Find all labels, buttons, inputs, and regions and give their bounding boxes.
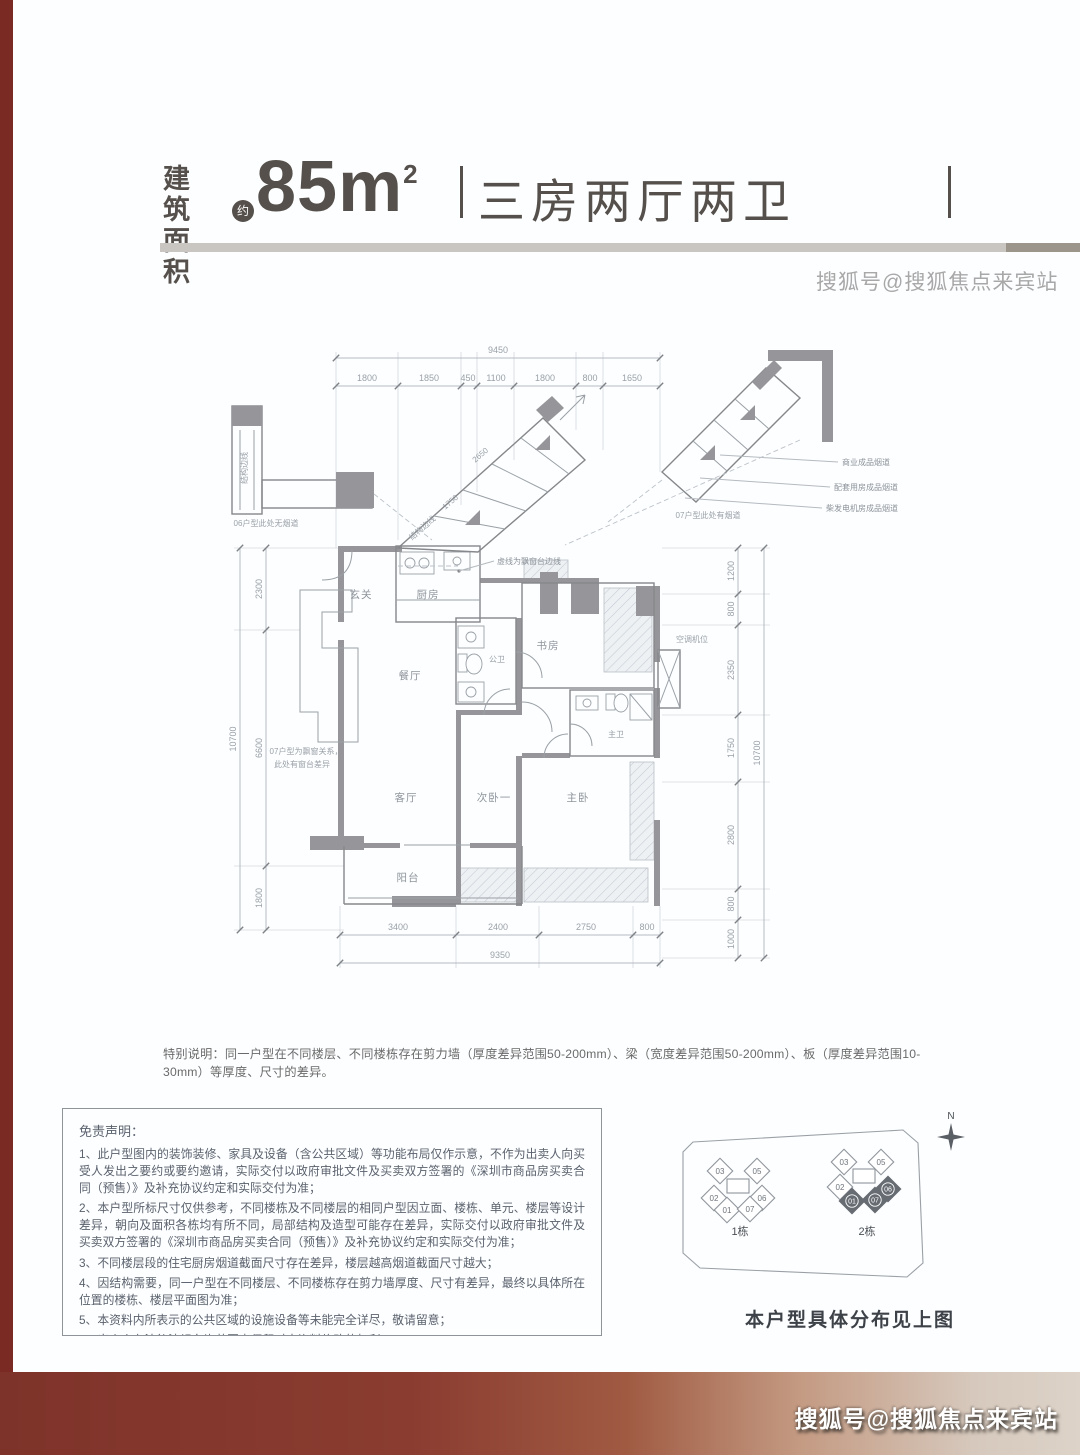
svg-text:07: 07	[746, 1205, 755, 1214]
area-value: 85m2	[256, 146, 419, 228]
svg-text:06户型此处无烟道: 06户型此处无烟道	[234, 518, 299, 528]
svg-text:公卫: 公卫	[489, 655, 505, 664]
svg-text:07: 07	[871, 1198, 879, 1205]
svg-text:06: 06	[884, 1187, 892, 1194]
svg-text:2800: 2800	[726, 825, 736, 845]
diagonal-corridor-wing: 2650 1750 结构边线	[398, 395, 585, 552]
svg-text:800: 800	[639, 922, 654, 932]
building-1-label: 1栋	[731, 1224, 748, 1238]
core-lobby-outline: 07户型为飘窗关系， 此处有窗台差异	[270, 590, 358, 769]
svg-text:N: N	[947, 1111, 954, 1122]
disclaimer-item: 1、此户型图内的装饰装修、家具及设备（含公共区域）等功能布局仅作示意，不作为出卖…	[79, 1146, 585, 1197]
svg-text:1850: 1850	[419, 373, 439, 383]
watermark-bottom-right: 搜狐号@搜狐焦点来宾站	[795, 1400, 1058, 1434]
svg-text:玄关: 玄关	[350, 588, 373, 601]
svg-text:柴发电机房成品烟道: 柴发电机房成品烟道	[826, 503, 898, 513]
svg-text:1000: 1000	[726, 929, 736, 949]
svg-text:06: 06	[758, 1194, 767, 1203]
building-2: 03 05 02 06 01 07 2栋	[827, 1149, 900, 1238]
svg-text:此处有窗台差异: 此处有窗台差异	[274, 759, 330, 769]
svg-text:2300: 2300	[254, 579, 264, 599]
svg-text:6600: 6600	[254, 738, 264, 758]
left-accent-strip	[0, 0, 13, 1455]
svg-text:2750: 2750	[576, 922, 596, 932]
svg-text:1800: 1800	[357, 373, 377, 383]
svg-text:02: 02	[710, 1194, 719, 1203]
svg-text:2350: 2350	[726, 660, 736, 680]
svg-text:厨房: 厨房	[417, 588, 440, 601]
svg-text:2650: 2650	[471, 446, 491, 465]
header-divider	[160, 243, 1080, 252]
svg-text:800: 800	[582, 373, 597, 383]
svg-text:1200: 1200	[726, 561, 736, 581]
bottom-gradient-band: 搜狐号@搜狐焦点来宾站	[0, 1372, 1080, 1455]
svg-text:2400: 2400	[488, 922, 508, 932]
svg-text:客厅: 客厅	[395, 791, 418, 804]
svg-text:书房: 书房	[537, 639, 560, 652]
page: 建筑 面积 约 85m2 三房两厅两卫 搜狐号@搜狐焦点来宾站	[0, 0, 1080, 1455]
floor-plan-drawing: 9450 1800 1850 450 1100 1800 800 1650 10…	[150, 335, 980, 1035]
layout-title: 三房两厅两卫	[478, 163, 796, 232]
svg-text:主卧: 主卧	[567, 791, 590, 804]
disclaimer-box: 免责声明： 1、此户型图内的装饰装修、家具及设备（含公共区域）等功能布局仅作示意…	[62, 1108, 602, 1336]
separator-bar-left	[460, 166, 463, 218]
area-label-line1: 建筑	[163, 164, 192, 226]
svg-text:03: 03	[716, 1167, 725, 1176]
svg-text:450: 450	[460, 373, 475, 383]
area-label-line2: 面积	[163, 226, 192, 288]
disclaimer-item: 6、出卖人在法律法规允许范围内保留对本资料修改的权利；	[79, 1332, 585, 1336]
svg-text:9450: 9450	[488, 345, 508, 355]
svg-text:3400: 3400	[388, 922, 408, 932]
svg-text:800: 800	[726, 896, 736, 911]
svg-text:05: 05	[877, 1158, 886, 1167]
structure-left: 结构边线 06户型此处无烟道	[232, 406, 432, 540]
svg-text:800: 800	[726, 601, 736, 616]
disclaimer-item: 3、不同楼层段的住宅厨房烟道截面尺寸存在差异，楼层越高烟道截面尺寸越大；	[79, 1255, 585, 1272]
disclaimer-item: 2、本户型所标尺寸仅供参考，不同楼栋及不同楼层的相同户型因立面、楼栋、单元、楼层…	[79, 1200, 585, 1251]
area-superscript: 2	[403, 159, 418, 189]
area-label: 建筑 面积	[163, 164, 192, 288]
svg-text:9350: 9350	[490, 950, 510, 960]
svg-text:1800: 1800	[254, 888, 264, 908]
svg-text:07户型为飘窗关系，: 07户型为飘窗关系，	[270, 746, 343, 756]
site-plan-caption: 本户型具体分布见上图	[700, 1305, 1000, 1332]
svg-text:10700: 10700	[752, 740, 762, 765]
site-plan: N 03 05 02 06 01 07 1栋 03 05 02 06 01 07…	[655, 1105, 1010, 1335]
disclaimer-item: 5、本资料内所表示的公共区域的设施设备等未能完全详尽，敬请留意；	[79, 1312, 585, 1329]
svg-text:05: 05	[753, 1167, 762, 1176]
svg-text:商业成品烟道: 商业成品烟道	[842, 457, 890, 467]
svg-text:07户型此处有烟道: 07户型此处有烟道	[676, 510, 741, 520]
watermark-top-right: 搜狐号@搜狐焦点来宾站	[816, 266, 1058, 296]
svg-text:1100: 1100	[486, 373, 505, 383]
svg-text:1750: 1750	[726, 738, 736, 758]
svg-text:01: 01	[848, 1199, 856, 1206]
special-note: 特别说明：同一户型在不同楼层、不同楼栋存在剪力墙（厚度差异范围50-200mm）…	[163, 1044, 953, 1080]
svg-text:主卫: 主卫	[608, 729, 624, 739]
svg-text:10700: 10700	[228, 726, 238, 751]
approx-badge: 约	[232, 200, 254, 222]
flue-structure-topright: 商业成品烟道 配套用房成品烟道 柴发电机房成品烟道 07户型此处有烟道	[565, 350, 898, 545]
svg-text:阳台: 阳台	[397, 871, 420, 884]
separator-bar-right	[948, 166, 951, 218]
north-compass: N	[937, 1111, 965, 1151]
svg-text:虚线为飘窗台边线: 虚线为飘窗台边线	[497, 556, 561, 566]
svg-text:02: 02	[836, 1183, 845, 1192]
svg-text:餐厅: 餐厅	[399, 669, 422, 682]
svg-text:空调机位: 空调机位	[676, 634, 708, 644]
header-divider-dark-segment	[1006, 243, 1080, 252]
disclaimer-title: 免责声明：	[79, 1121, 585, 1140]
building-2-label: 2栋	[858, 1224, 875, 1238]
svg-text:1800: 1800	[535, 373, 555, 383]
svg-text:次卧一: 次卧一	[477, 791, 512, 804]
svg-text:1650: 1650	[622, 373, 642, 383]
svg-text:01: 01	[723, 1206, 732, 1215]
svg-text:03: 03	[840, 1158, 849, 1167]
svg-text:结构边线: 结构边线	[239, 452, 249, 484]
building-1: 03 05 02 06 01 07 1栋	[701, 1158, 774, 1238]
disclaimer-item: 4、因结构需要，同一户型在不同楼层、不同楼栋存在剪力墙厚度、尺寸有差异，最终以具…	[79, 1275, 585, 1309]
svg-text:结构边线: 结构边线	[407, 513, 438, 542]
svg-text:配套用房成品烟道: 配套用房成品烟道	[834, 482, 898, 492]
